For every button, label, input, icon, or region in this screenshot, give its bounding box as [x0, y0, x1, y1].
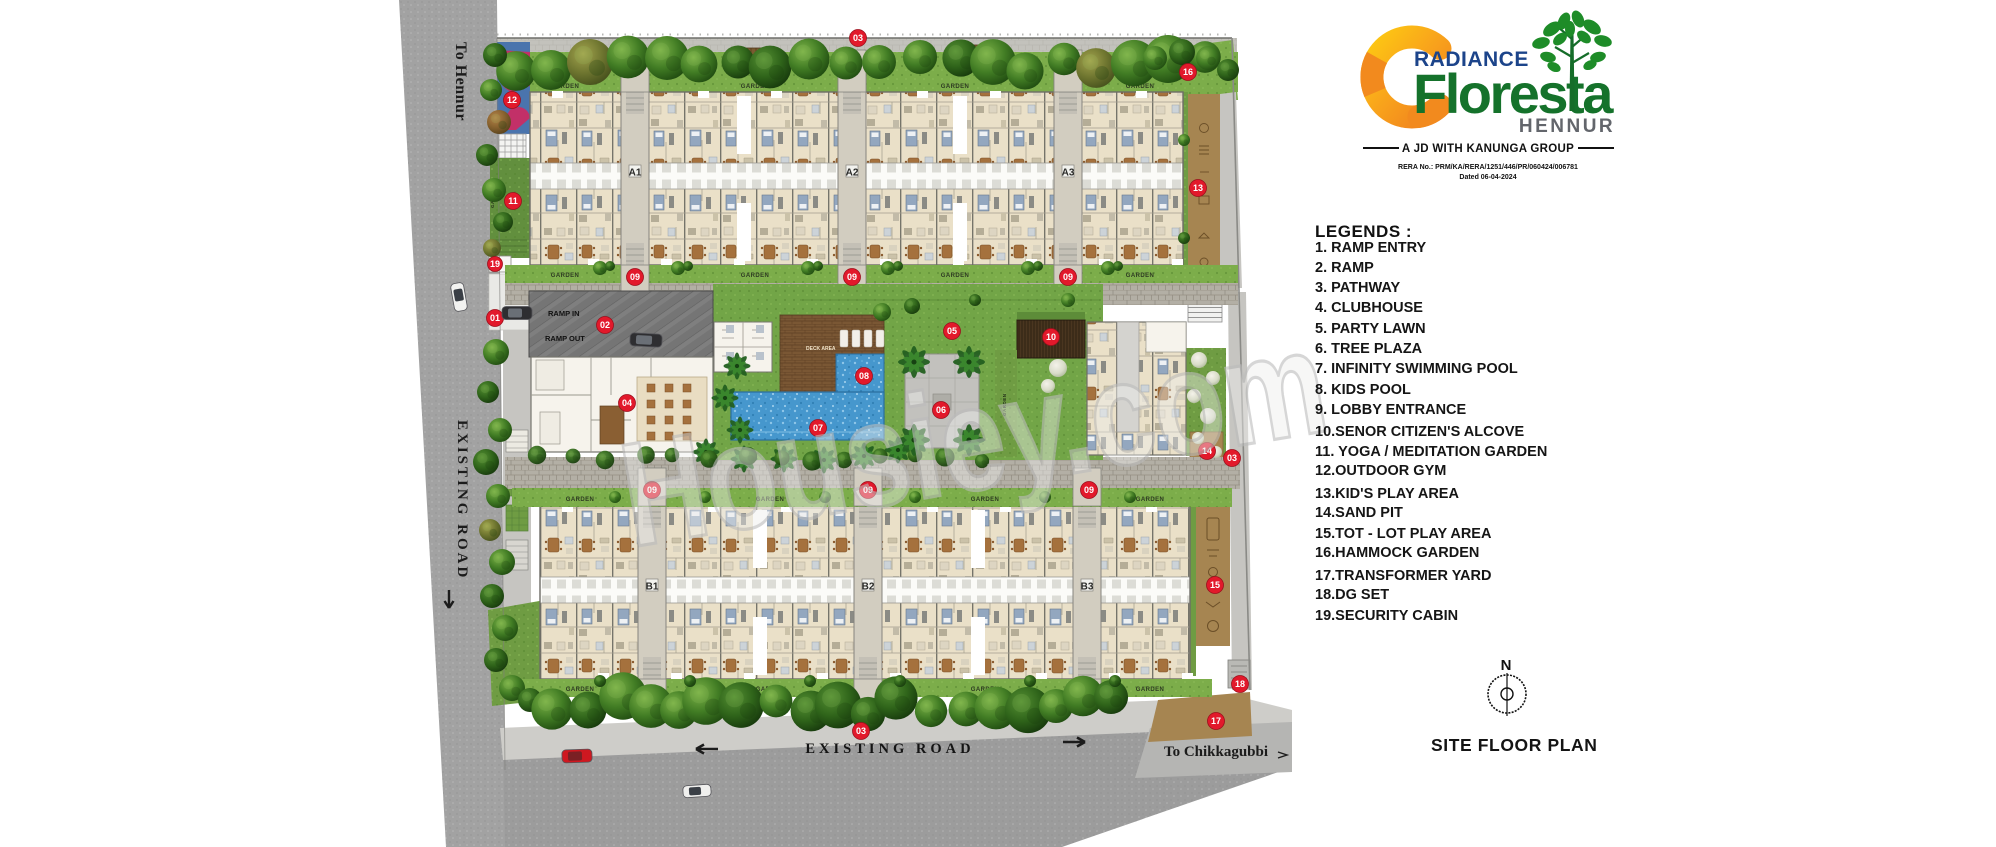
- svg-text:09: 09: [1063, 272, 1073, 282]
- svg-text:19: 19: [490, 259, 500, 269]
- svg-text:RAMP OUT: RAMP OUT: [545, 334, 585, 343]
- svg-text:A1: A1: [629, 168, 642, 179]
- svg-text:GARDEN: GARDEN: [551, 273, 579, 279]
- svg-text:A3: A3: [1062, 168, 1075, 179]
- svg-text:03: 03: [853, 33, 863, 43]
- svg-text:GARDEN: GARDEN: [941, 273, 969, 279]
- svg-text:8. KIDS POOL: 8. KIDS POOL: [1315, 382, 1411, 398]
- svg-text:18: 18: [1235, 679, 1245, 689]
- svg-text:6. TREE PLAZA: 6. TREE PLAZA: [1315, 341, 1423, 357]
- svg-text:GARDEN: GARDEN: [1126, 273, 1154, 279]
- svg-text:GARDEN: GARDEN: [566, 497, 594, 503]
- svg-text:13: 13: [1193, 183, 1203, 193]
- svg-text:12.OUTDOOR GYM: 12.OUTDOOR GYM: [1315, 463, 1446, 479]
- svg-text:19.SECURITY CABIN: 19.SECURITY CABIN: [1315, 608, 1458, 624]
- svg-text:05: 05: [947, 326, 957, 336]
- svg-text:B2: B2: [862, 582, 875, 593]
- svg-text:10.SENOR CITIZEN'S ALCOVE: 10.SENOR CITIZEN'S ALCOVE: [1315, 424, 1524, 440]
- svg-text:To Hennur: To Hennur: [452, 42, 469, 121]
- svg-text:GARDEN: GARDEN: [941, 84, 969, 90]
- svg-text:B1: B1: [646, 582, 659, 593]
- svg-text:01: 01: [490, 313, 500, 323]
- svg-text:To Chikkagubbi: To Chikkagubbi: [1164, 744, 1268, 760]
- svg-text:03: 03: [856, 726, 866, 736]
- svg-text:EXISTING ROAD: EXISTING ROAD: [805, 741, 974, 757]
- svg-text:EXISTING ROAD: EXISTING ROAD: [454, 420, 470, 580]
- svg-text:1. RAMP ENTRY: 1. RAMP ENTRY: [1315, 240, 1427, 256]
- svg-text:16: 16: [1183, 67, 1193, 77]
- svg-text:3. PATHWAY: 3. PATHWAY: [1315, 280, 1400, 296]
- svg-text:N: N: [1501, 657, 1512, 674]
- svg-text:A2: A2: [846, 168, 859, 179]
- svg-text:LEGENDS :: LEGENDS :: [1315, 222, 1412, 241]
- svg-text:9. LOBBY ENTRANCE: 9. LOBBY ENTRANCE: [1315, 402, 1467, 418]
- svg-text:15.TOT - LOT PLAY AREA: 15.TOT - LOT PLAY AREA: [1315, 526, 1492, 542]
- svg-text:12: 12: [507, 95, 517, 105]
- svg-text:GARDEN: GARDEN: [1136, 687, 1164, 693]
- svg-text:17.TRANSFORMER YARD: 17.TRANSFORMER YARD: [1315, 568, 1491, 584]
- svg-text:HENNUR: HENNUR: [1519, 116, 1615, 137]
- svg-text:11. YOGA / MEDITATION GARDEN: 11. YOGA / MEDITATION GARDEN: [1315, 444, 1547, 460]
- svg-text:16.HAMMOCK GARDEN: 16.HAMMOCK GARDEN: [1315, 545, 1479, 561]
- svg-text:B3: B3: [1081, 582, 1094, 593]
- svg-text:GARDEN: GARDEN: [1136, 497, 1164, 503]
- svg-text:Dated 06-04-2024: Dated 06-04-2024: [1459, 174, 1516, 181]
- svg-text:4. CLUBHOUSE: 4. CLUBHOUSE: [1315, 300, 1423, 316]
- svg-text:A JD WITH KANUNGA GROUP: A JD WITH KANUNGA GROUP: [1402, 143, 1574, 155]
- svg-text:18.DG SET: 18.DG SET: [1315, 587, 1389, 603]
- svg-text:09: 09: [630, 272, 640, 282]
- svg-text:15: 15: [1210, 580, 1220, 590]
- svg-text:5. PARTY LAWN: 5. PARTY LAWN: [1315, 321, 1426, 337]
- svg-text:RAMP IN: RAMP IN: [548, 309, 580, 318]
- svg-text:DECK AREA: DECK AREA: [806, 346, 836, 352]
- svg-text:13.KID'S PLAY AREA: 13.KID'S PLAY AREA: [1315, 486, 1459, 502]
- svg-text:17: 17: [1211, 716, 1221, 726]
- svg-text:09: 09: [847, 272, 857, 282]
- svg-text:04: 04: [622, 398, 632, 408]
- svg-text:RERA No.: PRM/KA/RERA/1251/446: RERA No.: PRM/KA/RERA/1251/446/PR/060424…: [1398, 164, 1578, 171]
- svg-text:11: 11: [508, 196, 518, 206]
- svg-text:2. RAMP: 2. RAMP: [1315, 260, 1374, 276]
- svg-text:7. INFINITY SWIMMING POOL: 7. INFINITY SWIMMING POOL: [1315, 361, 1518, 377]
- svg-text:14.SAND PIT: 14.SAND PIT: [1315, 505, 1403, 521]
- svg-text:GARDEN: GARDEN: [741, 273, 769, 279]
- svg-text:02: 02: [600, 320, 610, 330]
- svg-text:10: 10: [1046, 332, 1056, 342]
- svg-text:SITE FLOOR PLAN: SITE FLOOR PLAN: [1431, 735, 1598, 755]
